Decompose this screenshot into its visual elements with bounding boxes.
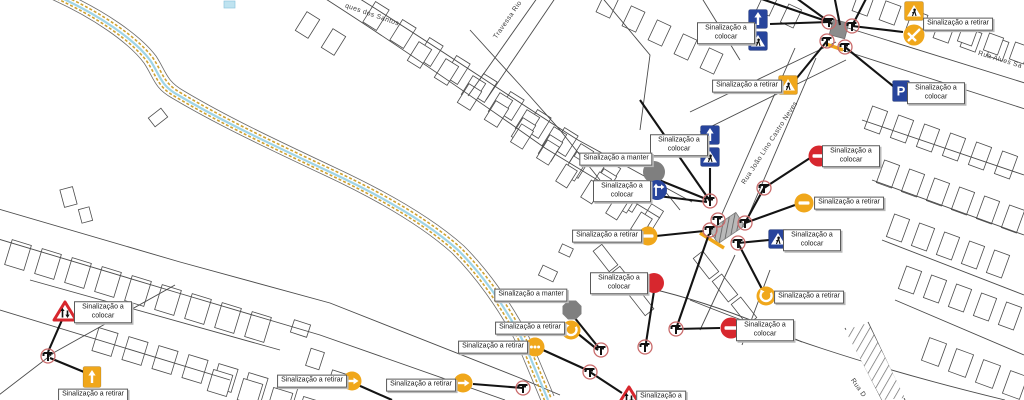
prohibition-dash-sign-old-icon — [795, 194, 814, 213]
roundabout-sign-old-icon — [757, 287, 776, 306]
leader-line — [845, 47, 893, 86]
signage-label: Sinalização a colocar — [590, 272, 648, 294]
signage-label: Sinalização a retirar — [277, 375, 347, 388]
leader-line — [646, 291, 654, 343]
leader-line — [50, 358, 84, 372]
signpost-node — [594, 343, 608, 357]
leader-line — [656, 231, 704, 236]
leader-line — [543, 350, 587, 370]
leader-line — [738, 240, 769, 243]
stop-sign-kept-icon — [563, 301, 582, 320]
signage-label: Sinalização a retirar — [572, 230, 642, 243]
signage-label: Sinalização a colocar — [74, 301, 132, 323]
signage-label: Sinalização a retirar — [923, 18, 993, 31]
signage-label: Sinalização a colocar — [822, 145, 880, 167]
signage-label: Sinalização a manter — [494, 289, 567, 302]
signpost-node — [516, 381, 530, 395]
leader-line — [738, 243, 762, 289]
leader-line — [590, 372, 622, 393]
leader-line — [852, 26, 903, 32]
signpost-node — [838, 40, 852, 54]
svg-text:P: P — [897, 84, 906, 99]
leader-line — [770, 22, 829, 24]
signpost-node — [638, 340, 652, 354]
signage-label: Sinalização a colocar — [736, 319, 794, 341]
leader-line — [676, 234, 709, 329]
signage-label: Sinalização a retirar — [58, 389, 128, 400]
signpost-node — [738, 216, 752, 230]
two-way-traffic-warning-sign-icon — [54, 302, 76, 320]
direction-arrow-sign-old-icon — [454, 374, 473, 393]
signage-label: Sinalização a retirar — [774, 291, 844, 304]
signage-label: Sinalização a retirar — [386, 379, 456, 392]
signage-label: Sinalização a colocar — [907, 82, 965, 104]
signpost-node — [757, 181, 771, 195]
one-way-arrow-sign-old-icon — [83, 367, 101, 388]
signage-label: Sinalização a retirar — [458, 341, 528, 354]
signage-map-canvas: P Sinalização a colocarSinalização a ret… — [0, 0, 1024, 400]
signpost-node — [711, 213, 725, 227]
dots-sign-old-icon — [526, 338, 545, 357]
signage-label: Sinalização a manter — [579, 153, 652, 166]
signage-label: Sinalização a colocar — [783, 229, 841, 251]
signage-label: Sinalização a retirar — [814, 197, 884, 210]
signpost-node — [583, 365, 597, 379]
signage-label: Sinalização a colocar — [650, 134, 708, 156]
pedestrian-crossing-sign-old-icon — [905, 2, 924, 21]
signpost-node — [820, 34, 834, 48]
signage-label: Sinalização a colocar — [697, 22, 755, 44]
no-stopping-sign-old-icon — [904, 25, 925, 46]
signage-label: Sinalização a retirar — [712, 80, 782, 93]
signage-label: Sinalização a — [636, 391, 686, 400]
signage-label: Sinalização a retirar — [495, 322, 565, 335]
signage-label: Sinalização a colocar — [593, 180, 651, 202]
